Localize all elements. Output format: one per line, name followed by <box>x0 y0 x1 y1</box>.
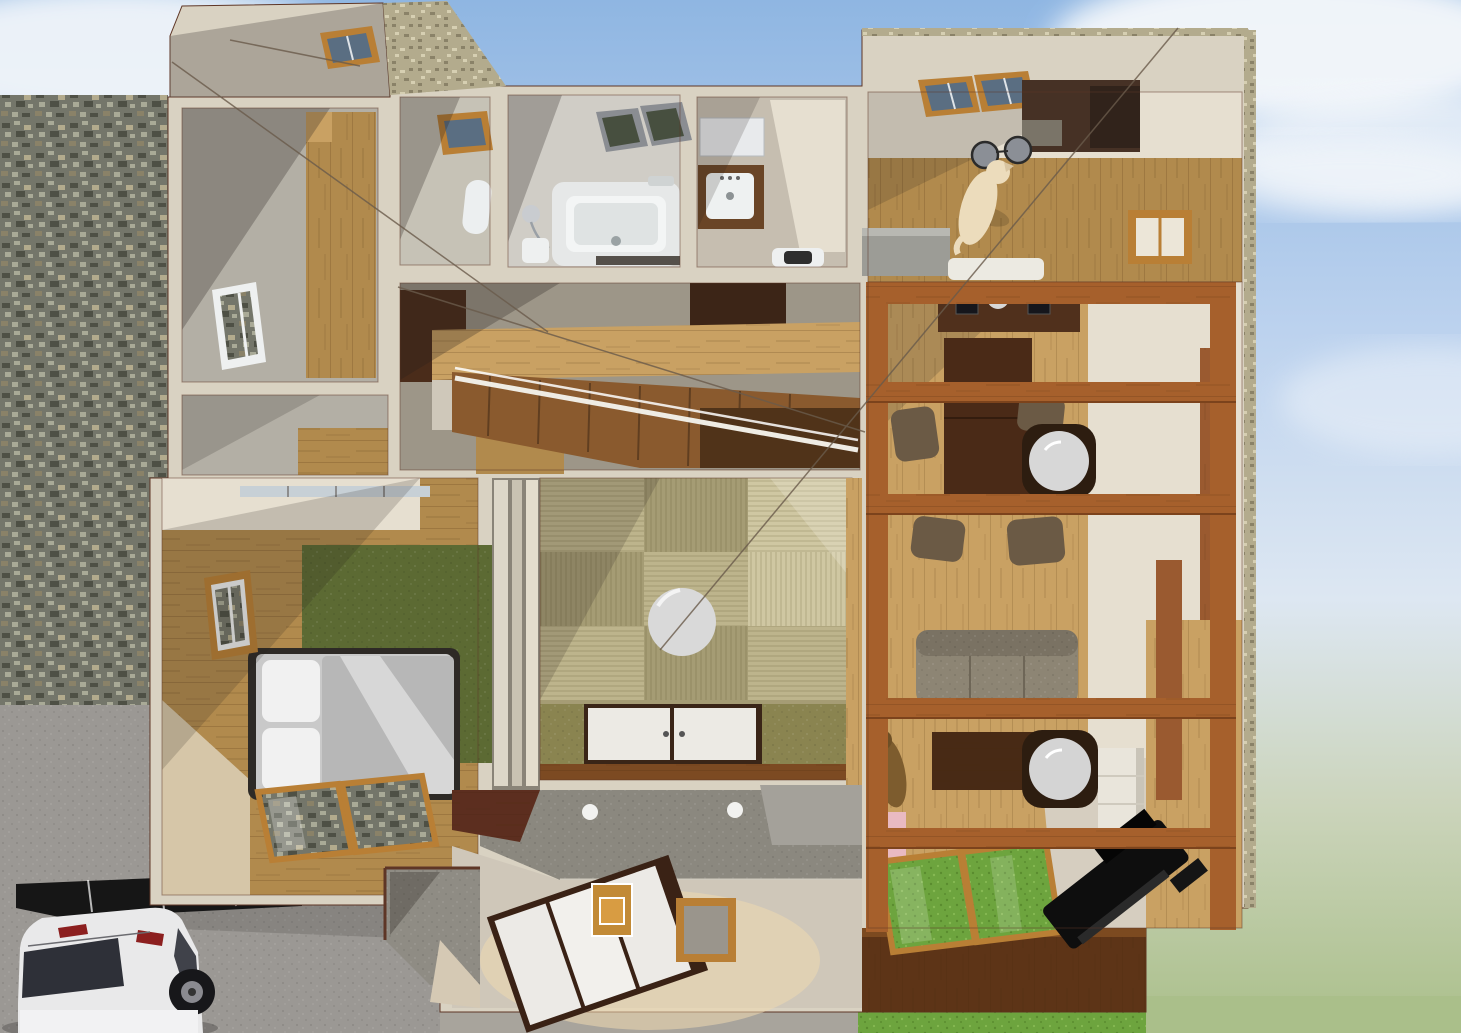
dining-living-wing <box>862 282 1242 1012</box>
floor-drain <box>596 256 680 265</box>
entry-step <box>760 785 862 845</box>
stair-tower-roof <box>170 1 506 97</box>
dark-kitchen-cabinets <box>1022 80 1140 152</box>
sink-drain <box>726 192 734 200</box>
engawa-posts <box>492 478 540 790</box>
glass-floor-panels <box>878 842 1060 952</box>
futon-closet-row <box>540 704 852 764</box>
double-bed <box>248 648 460 800</box>
stairwell-room <box>182 108 378 382</box>
bathtub <box>552 176 680 266</box>
van-hood <box>20 1010 198 1033</box>
round-paper-lantern-2 <box>1022 730 1098 808</box>
hallway-stairs <box>400 283 860 474</box>
washing-machine <box>772 248 824 267</box>
stone-retaining-wall <box>0 95 168 707</box>
house-cutaway <box>150 1 1256 1033</box>
panel-handle-2 <box>679 731 685 737</box>
shoe-box <box>592 884 632 936</box>
genkan-entrance <box>452 785 862 1033</box>
shower-head <box>522 205 540 223</box>
panel-handle <box>663 731 669 737</box>
storage-rooms <box>182 395 388 475</box>
wood-grain <box>298 428 388 475</box>
wood-panel-door-2 <box>1156 560 1182 800</box>
toilet-room <box>400 97 493 265</box>
downlight-2 <box>727 802 743 818</box>
tv-board-grain <box>932 732 1034 790</box>
scene-canvas <box>0 0 1461 1033</box>
futon-panel-2 <box>674 708 756 760</box>
tub-deck <box>648 176 674 186</box>
round-paper-lantern <box>1022 424 1096 498</box>
white-bench <box>948 258 1044 280</box>
architectural-render <box>0 0 1461 1033</box>
pillow-2 <box>262 728 320 790</box>
floor-grain <box>432 322 860 380</box>
counter-edge <box>862 228 950 236</box>
wood-window <box>1128 210 1192 264</box>
edge-grain <box>540 764 852 780</box>
van-wheel-hub <box>188 988 196 996</box>
sofa <box>916 630 1078 708</box>
round-table <box>648 588 716 656</box>
wood-grain <box>306 112 376 378</box>
bathroom <box>508 95 692 267</box>
lit-wall-2 <box>1088 620 1146 760</box>
bedroom <box>162 478 492 895</box>
lawn-far <box>1146 996 1461 1033</box>
wooden-tray <box>676 898 736 962</box>
glass-floor-windows <box>258 776 436 860</box>
downlight <box>582 804 598 820</box>
tatami-room <box>540 478 852 780</box>
north-wall-top <box>862 28 1248 36</box>
kitchen-dining-room <box>862 71 1242 282</box>
corridor-grain <box>846 478 862 790</box>
east-wall-top <box>1244 30 1256 908</box>
bath-stool <box>522 238 549 263</box>
washroom <box>697 97 847 267</box>
futon-panel <box>588 708 670 760</box>
pillow <box>262 660 320 722</box>
tub-drain <box>611 236 621 246</box>
